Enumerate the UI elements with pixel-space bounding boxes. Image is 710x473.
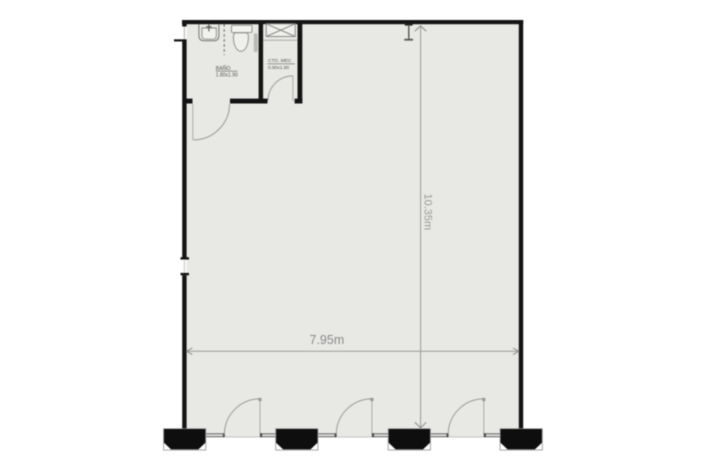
svg-text:CTO. MEC: CTO. MEC (268, 58, 292, 64)
svg-text:7.95m: 7.95m (310, 333, 345, 347)
svg-text:0.90x1.90: 0.90x1.90 (268, 65, 289, 71)
svg-text:10.35m: 10.35m (421, 194, 433, 231)
svg-text:BAÑO: BAÑO (216, 65, 231, 72)
svg-text:1.80x1.90: 1.80x1.90 (216, 72, 238, 78)
